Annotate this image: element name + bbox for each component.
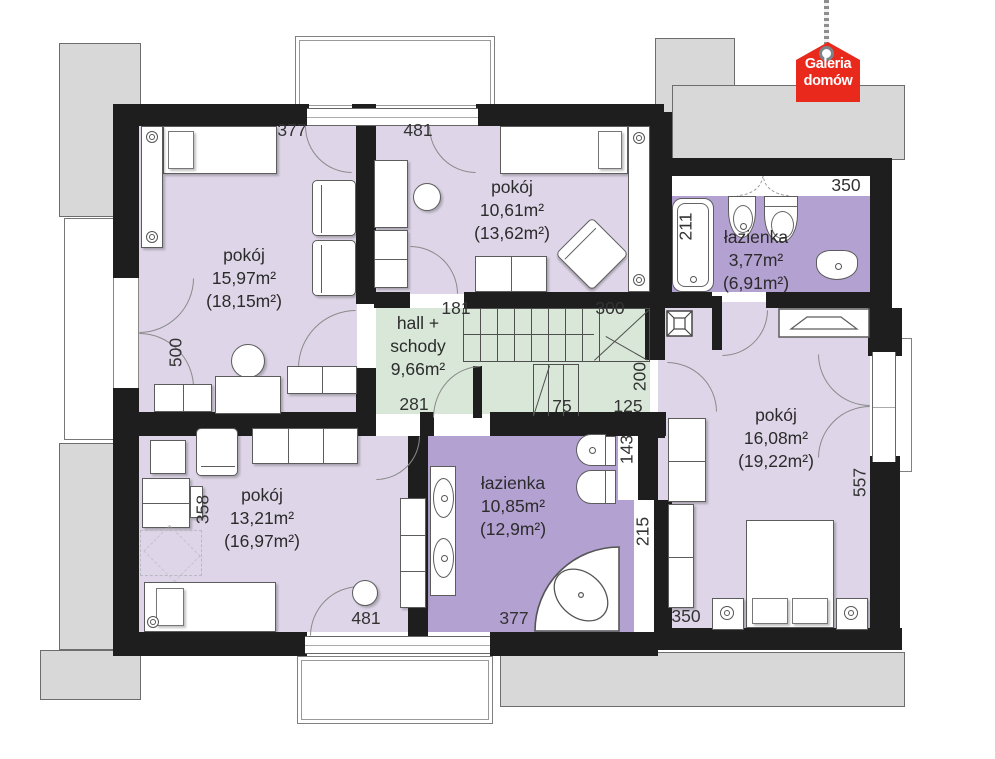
room-area: 10,85m²	[443, 495, 583, 518]
divider-line	[321, 185, 322, 233]
armchair	[312, 240, 356, 296]
window-sill-bottom	[305, 636, 490, 654]
divider-line	[401, 571, 425, 572]
room-area: 10,61m²	[442, 199, 582, 222]
balcony-bottom-inner	[301, 660, 489, 720]
stair-tread	[548, 308, 549, 362]
pillow	[598, 131, 622, 169]
dimension-label: 350	[664, 606, 708, 627]
pillow	[156, 588, 184, 626]
room-name: pokój	[442, 176, 582, 199]
round-table	[413, 183, 441, 211]
divider-line	[288, 429, 289, 463]
divider-line	[323, 429, 324, 463]
room-area-gross: (19,22m²)	[706, 450, 846, 473]
tap	[835, 263, 842, 270]
wall	[868, 308, 902, 356]
lamp	[146, 131, 158, 143]
roof-outline-bottom-left	[40, 650, 141, 700]
divider-line	[321, 245, 322, 293]
divider-line	[511, 257, 512, 291]
lamp	[720, 606, 734, 620]
roof-outline-top-right-b	[672, 85, 905, 160]
room-area: 15,97m²	[174, 267, 314, 290]
tap	[441, 555, 448, 562]
flush	[589, 447, 596, 454]
room-name: schody	[350, 335, 486, 358]
wall	[766, 292, 892, 308]
bed-side-panel	[628, 126, 650, 292]
bed-side-panel	[141, 126, 163, 248]
divider-line	[375, 259, 407, 260]
room-area: 3,77m²	[686, 249, 826, 272]
room-area: 16,08m²	[706, 427, 846, 450]
divider-line	[669, 557, 693, 558]
wall	[356, 104, 376, 304]
room-label-lazienka-1: łazienka 3,77m² (6,91m²)	[686, 226, 826, 294]
balcony-top	[295, 36, 495, 110]
toilet	[576, 434, 606, 466]
dimension-label: 281	[392, 394, 436, 415]
room-area-gross: (16,97m²)	[192, 530, 332, 553]
room-name: łazienka	[443, 472, 583, 495]
room-label-hall: hall + schody 9,66m²	[350, 312, 486, 380]
wall	[113, 632, 307, 656]
wall	[870, 456, 900, 632]
dimension-label: 350	[824, 175, 868, 196]
stair-tread	[533, 364, 534, 416]
divider-line	[143, 503, 189, 504]
wall	[476, 104, 664, 126]
room-area-gross: (6,91m²)	[686, 272, 826, 295]
armchair	[196, 428, 238, 476]
dimension-label: 181	[434, 298, 478, 319]
wall	[374, 292, 410, 308]
divider-line	[401, 535, 425, 536]
floor-plan: pokój 15,97m² (18,15m²) pokój 10,61m² (1…	[0, 0, 995, 759]
wall	[658, 628, 902, 650]
dimension-label: 358	[193, 488, 214, 532]
wall	[870, 176, 892, 308]
dimension-label: 557	[850, 461, 871, 505]
table	[150, 440, 186, 474]
balcony-bottom	[297, 656, 493, 724]
dimension-label: 211	[676, 205, 697, 249]
corner-bathtub	[534, 546, 620, 632]
wall	[356, 412, 376, 436]
stair-tread	[582, 308, 583, 362]
wardrobe	[374, 160, 408, 228]
dimension-label: 215	[633, 510, 654, 554]
roof-outline-bottom-right	[500, 652, 905, 707]
sink	[433, 538, 454, 578]
divider-line	[669, 461, 705, 462]
desk	[142, 478, 190, 528]
room-area-gross: (12,9m²)	[443, 518, 583, 541]
cabinet	[287, 366, 357, 394]
room-label-pokoj-1: pokój 15,97m² (18,15m²)	[174, 244, 314, 312]
vent-shaft-icon	[666, 310, 693, 337]
lamp	[146, 231, 158, 243]
tank-line	[765, 206, 797, 207]
stair-edge	[533, 364, 578, 365]
logo-text-line2: domów	[796, 74, 860, 89]
dimension-label: 377	[270, 120, 314, 141]
wall	[420, 412, 434, 436]
stair-tread	[565, 308, 566, 362]
stair-tread	[497, 308, 498, 362]
room-label-lazienka-2: łazienka 10,85m² (12,9m²)	[443, 472, 583, 540]
wardrobe	[668, 504, 694, 608]
sofa	[252, 428, 358, 464]
lamp	[844, 606, 858, 620]
room-area-gross: (18,15m²)	[174, 290, 314, 313]
desk	[215, 376, 281, 414]
window-bay-left	[64, 218, 114, 440]
dimension-label: 125	[606, 396, 650, 417]
dimension-label: 200	[630, 355, 651, 399]
room-name: łazienka	[686, 226, 826, 249]
dimension-label: 481	[396, 120, 440, 141]
divider-line	[322, 367, 323, 393]
balcony-right-juliet	[894, 338, 912, 472]
cabinet	[154, 384, 212, 412]
window-sill-top	[307, 108, 478, 126]
wall	[650, 112, 672, 302]
door-strip-left	[113, 278, 139, 388]
wall	[490, 632, 658, 656]
wardrobe	[400, 498, 426, 608]
dimension-label: 75	[544, 396, 580, 417]
round-table	[231, 344, 265, 378]
armchair	[312, 180, 356, 236]
lamp	[633, 274, 645, 286]
dimension-label: 300	[588, 298, 632, 319]
round-table	[352, 580, 378, 606]
shelf	[778, 308, 870, 338]
lamp	[633, 132, 645, 144]
pillow	[752, 598, 788, 624]
dimension-label: 481	[344, 608, 388, 629]
wall	[650, 158, 892, 176]
stair-tread	[514, 308, 515, 362]
dimension-label: 377	[492, 608, 536, 629]
pillow	[168, 131, 194, 169]
room-label-pokoj-4: pokój 16,08m² (19,22m²)	[706, 404, 846, 472]
room-name: pokój	[706, 404, 846, 427]
logo-text-line1: Galeria	[796, 57, 860, 72]
door-leaf	[712, 296, 722, 350]
logo-chain	[824, 0, 829, 44]
room-label-pokoj-2: pokój 10,61m² (13,62m²)	[442, 176, 582, 244]
room-name: pokój	[174, 244, 314, 267]
cabinet	[374, 230, 408, 288]
lamp	[147, 616, 159, 628]
dimension-label: 143	[617, 428, 638, 472]
divider-line	[201, 466, 235, 467]
stair-tread	[531, 308, 532, 362]
pillow	[792, 598, 828, 624]
room-area-gross: (13,62m²)	[442, 222, 582, 245]
window-sill-right	[872, 352, 896, 462]
dimension-label: 500	[166, 331, 187, 375]
balcony-top-inner	[299, 40, 491, 106]
divider-line	[183, 385, 184, 411]
wardrobe	[668, 418, 706, 502]
room-area: 9,66m²	[350, 358, 486, 381]
wall	[638, 436, 658, 500]
wall	[113, 104, 139, 278]
sofa	[475, 256, 547, 292]
